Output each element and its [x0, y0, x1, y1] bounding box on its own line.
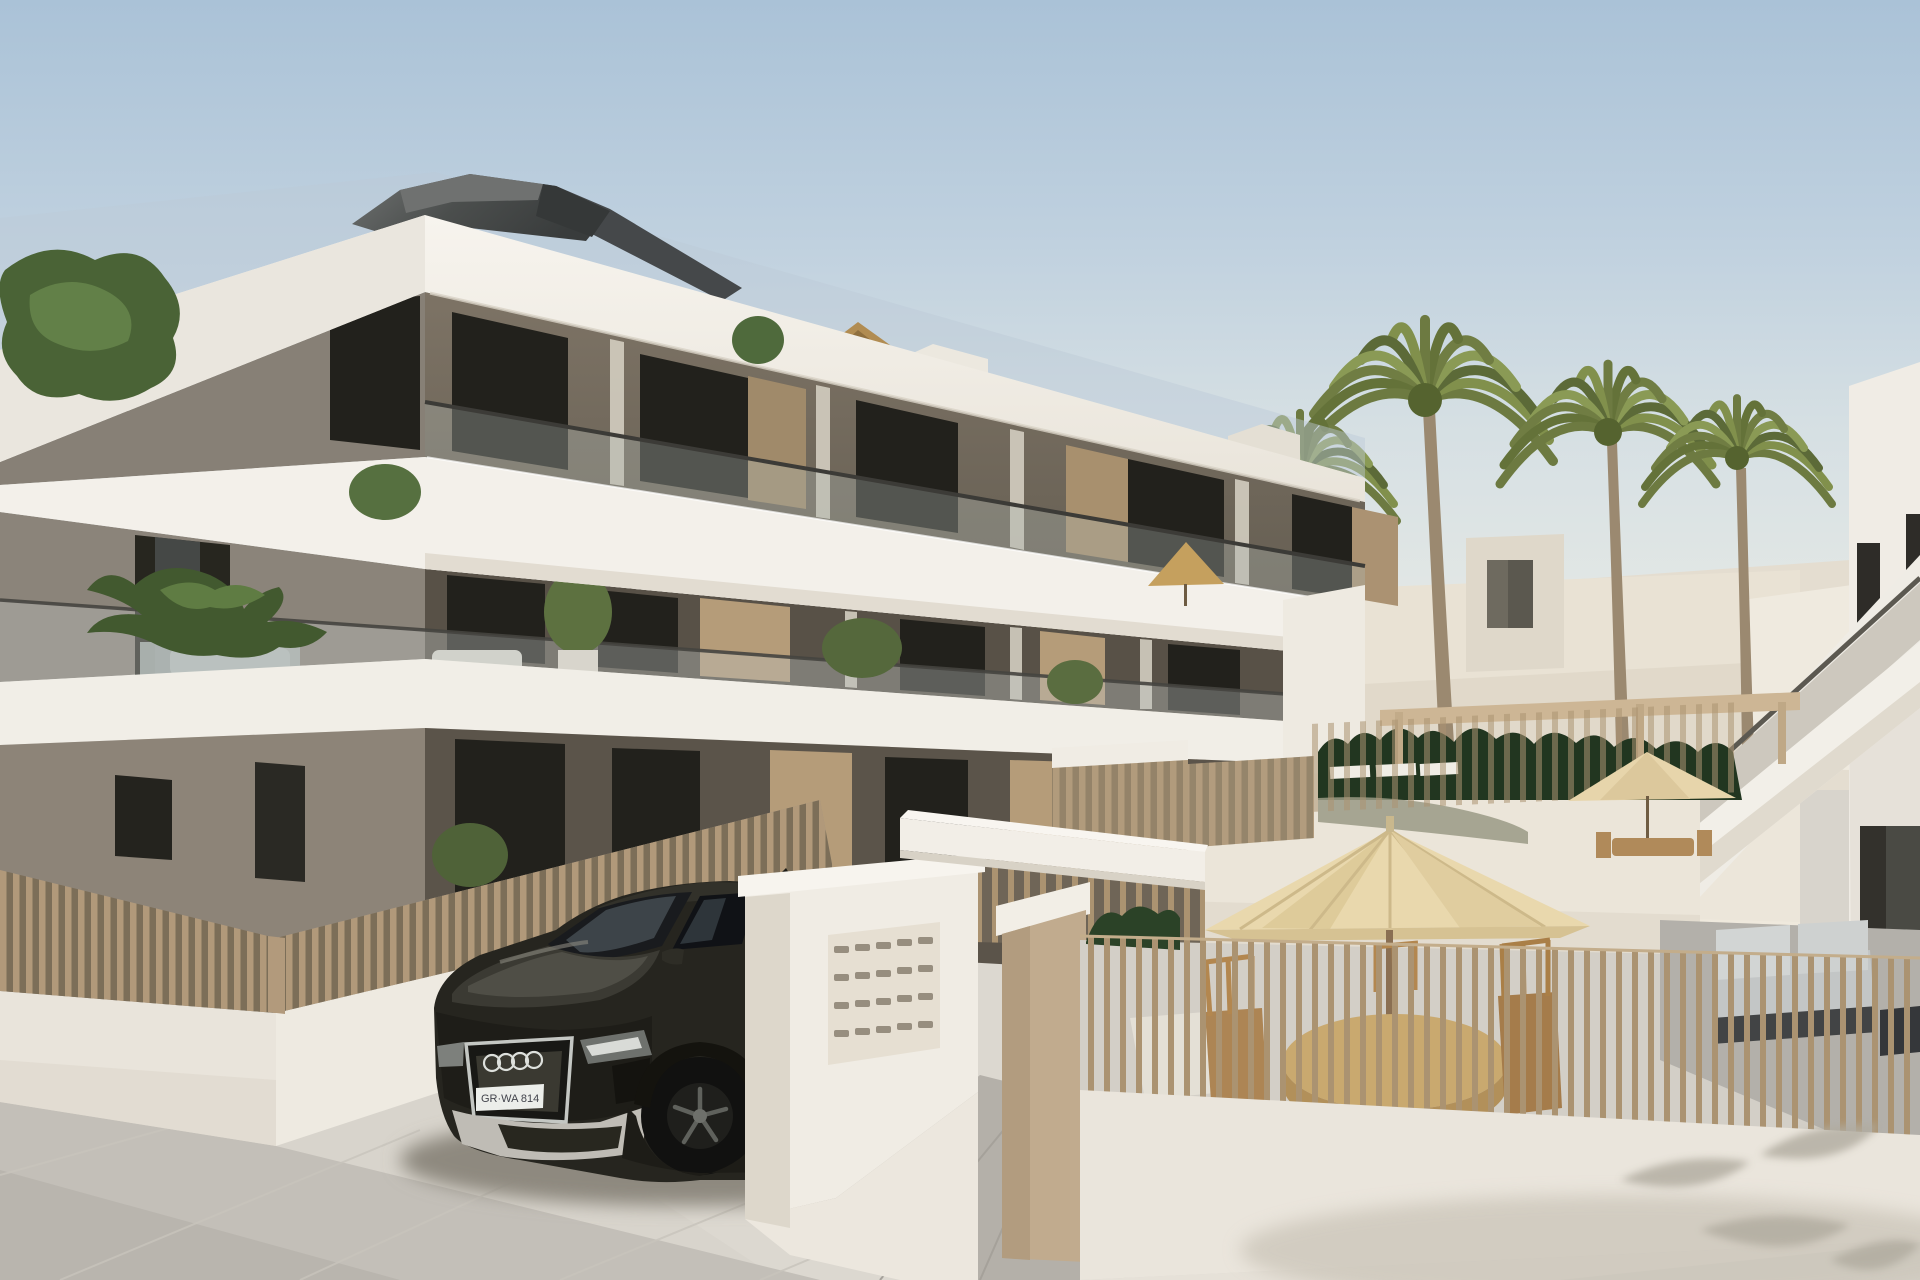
svg-text:GR·WA 814: GR·WA 814	[481, 1093, 539, 1105]
